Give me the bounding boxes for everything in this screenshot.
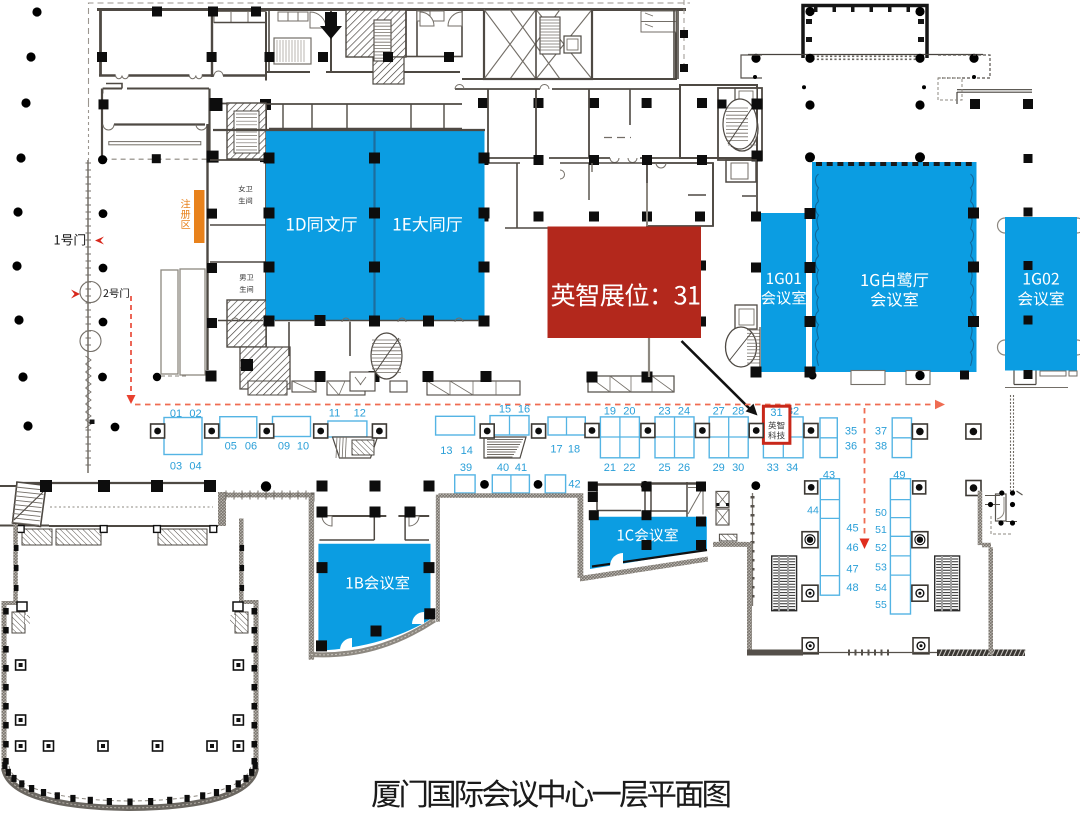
svg-text:04: 04 [189, 461, 201, 473]
svg-text:42: 42 [568, 479, 580, 491]
svg-text:05: 05 [225, 441, 237, 453]
svg-text:15: 15 [499, 404, 511, 416]
svg-text:48: 48 [846, 582, 858, 594]
svg-text:17: 17 [550, 443, 562, 455]
svg-text:01: 01 [170, 408, 182, 420]
svg-text:52: 52 [875, 542, 887, 554]
svg-text:29: 29 [713, 462, 725, 474]
svg-text:47: 47 [846, 563, 858, 575]
svg-text:20: 20 [623, 406, 635, 418]
svg-text:55: 55 [875, 599, 887, 611]
svg-text:11: 11 [329, 408, 340, 420]
svg-text:28: 28 [732, 406, 744, 418]
svg-text:25: 25 [658, 462, 670, 474]
svg-text:39: 39 [460, 462, 472, 474]
svg-text:53: 53 [875, 562, 887, 574]
svg-text:37: 37 [875, 426, 887, 438]
svg-text:38: 38 [875, 440, 887, 452]
svg-text:44: 44 [807, 504, 819, 516]
svg-text:22: 22 [623, 462, 635, 474]
svg-text:49: 49 [893, 470, 905, 482]
svg-text:40: 40 [497, 462, 509, 474]
svg-text:21: 21 [604, 462, 616, 474]
svg-text:35: 35 [845, 426, 857, 438]
svg-text:02: 02 [189, 408, 201, 420]
svg-text:27: 27 [713, 406, 725, 418]
svg-text:10: 10 [297, 441, 309, 453]
svg-text:16: 16 [518, 404, 530, 416]
svg-text:09: 09 [278, 441, 290, 453]
svg-text:45: 45 [846, 522, 858, 534]
svg-text:12: 12 [354, 408, 366, 420]
svg-text:19: 19 [604, 406, 616, 418]
svg-text:31: 31 [770, 407, 782, 419]
svg-text:54: 54 [875, 582, 887, 594]
svg-text:50: 50 [875, 507, 887, 519]
svg-text:23: 23 [658, 406, 670, 418]
svg-text:46: 46 [846, 542, 858, 554]
svg-text:06: 06 [245, 441, 257, 453]
svg-text:30: 30 [732, 462, 744, 474]
svg-text:43: 43 [823, 470, 835, 482]
svg-text:34: 34 [786, 462, 798, 474]
svg-text:41: 41 [515, 462, 527, 474]
svg-text:24: 24 [678, 406, 690, 418]
svg-text:03: 03 [170, 461, 182, 473]
svg-text:51: 51 [875, 524, 887, 536]
svg-text:14: 14 [461, 445, 473, 457]
svg-text:36: 36 [845, 440, 857, 452]
svg-text:18: 18 [568, 443, 580, 455]
svg-text:26: 26 [678, 462, 690, 474]
svg-text:13: 13 [440, 445, 452, 457]
svg-text:33: 33 [767, 462, 779, 474]
